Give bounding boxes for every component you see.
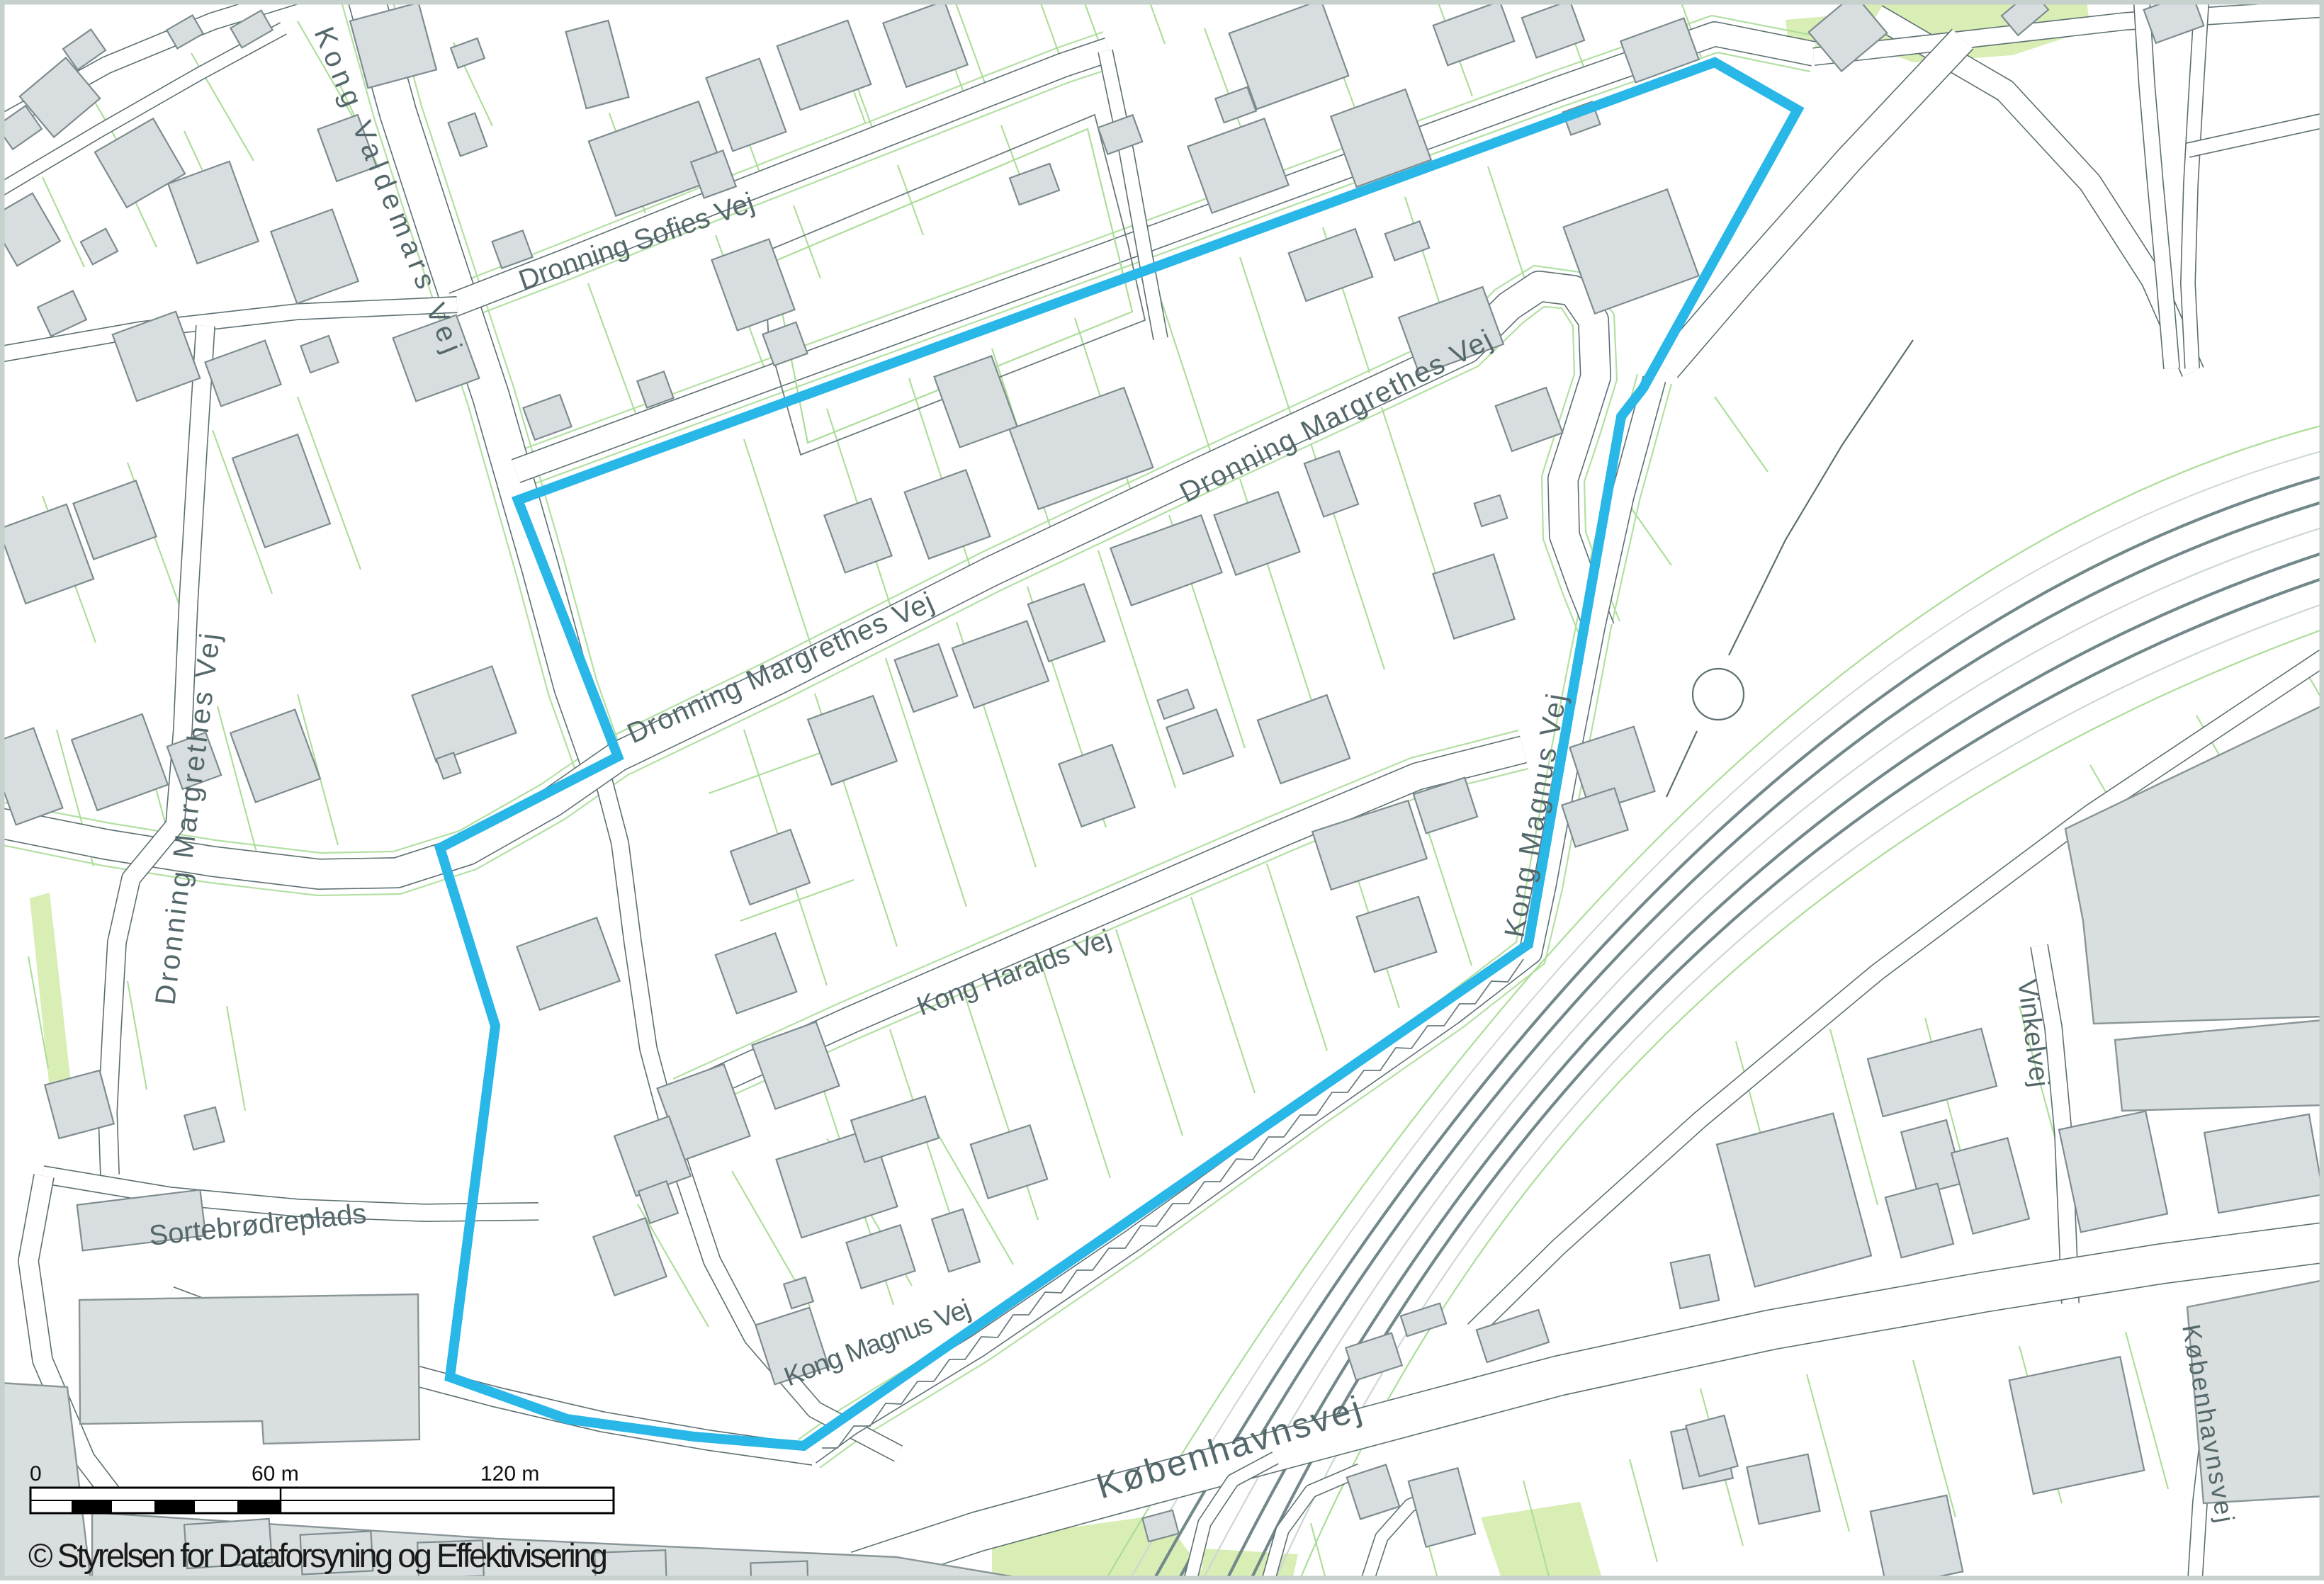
svg-text:60 m: 60 m <box>252 1462 299 1486</box>
svg-text:0: 0 <box>30 1462 42 1486</box>
svg-text:120 m: 120 m <box>480 1462 539 1486</box>
svg-text:© Styrelsen for Dataforsyning: © Styrelsen for Dataforsyning og Effekti… <box>28 1537 608 1574</box>
